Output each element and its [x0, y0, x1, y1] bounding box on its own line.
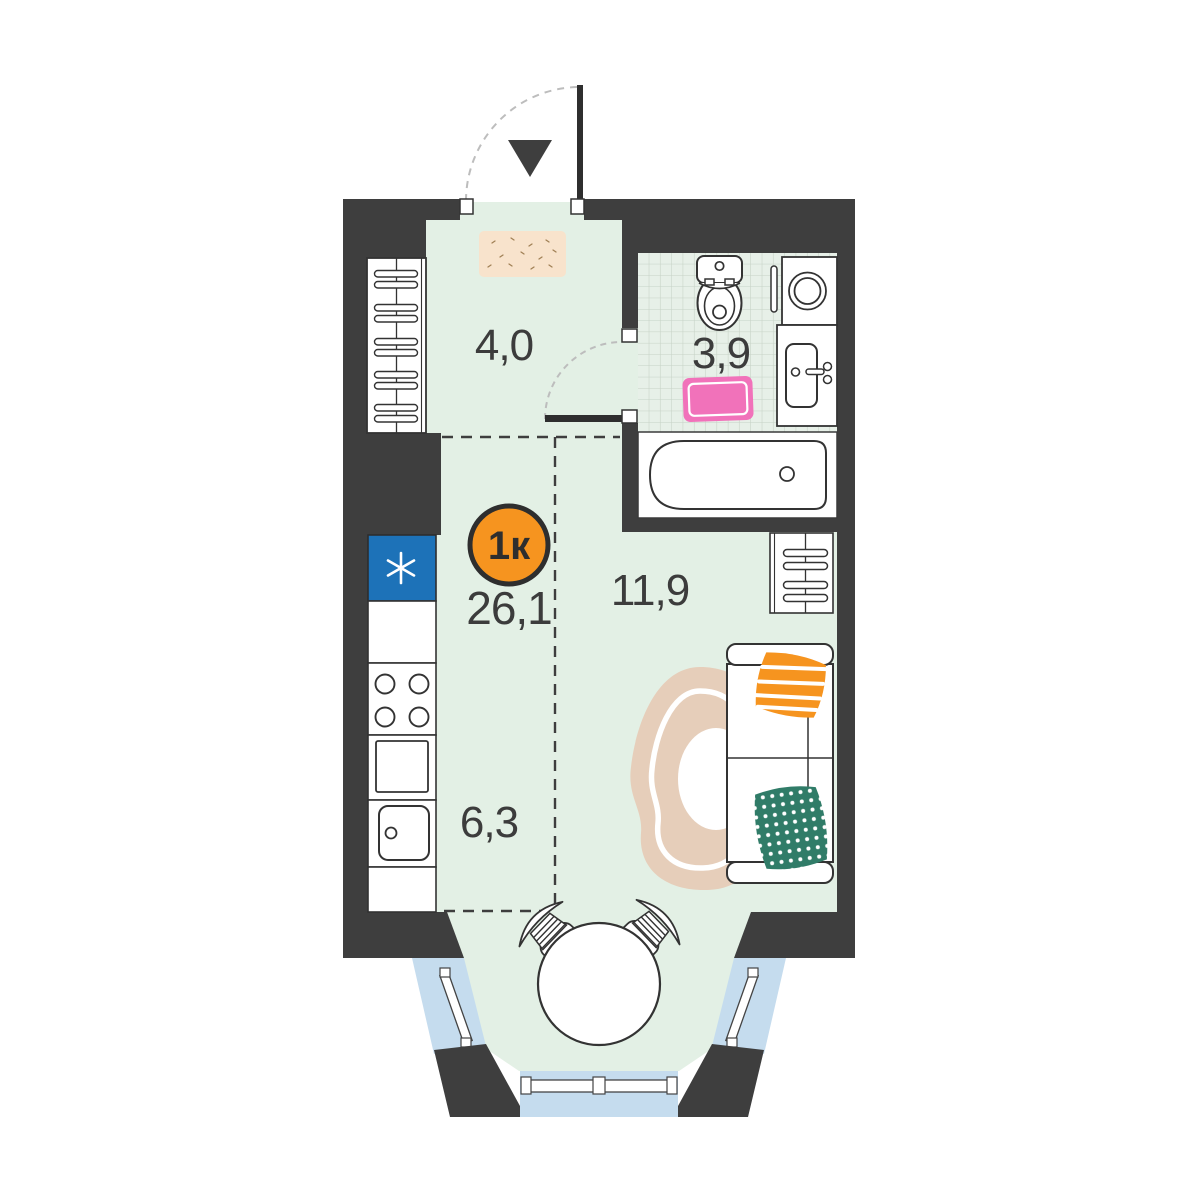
- stove: [368, 663, 436, 735]
- bathroom-area-label: 3,9: [692, 329, 750, 378]
- entrance-door: [460, 85, 584, 214]
- kitchen-area-label: 6,3: [460, 798, 518, 847]
- sofa: [727, 644, 833, 883]
- total-area-label: 26,1: [466, 582, 552, 634]
- bay-window-bottom: [520, 1071, 678, 1117]
- entrance-arrow-icon: [508, 140, 552, 177]
- bathtub: [638, 432, 837, 518]
- door-leaf: [545, 415, 622, 422]
- radiator: [770, 533, 833, 613]
- fridge: [368, 535, 436, 601]
- doormat: [479, 231, 566, 277]
- wardrobe: [367, 258, 426, 433]
- bathroom-sink: [777, 325, 837, 426]
- kitchen-sink: [368, 800, 436, 867]
- toilet: [697, 256, 742, 330]
- living-area-label: 11,9: [611, 566, 689, 615]
- hallway-area-label: 4,0: [475, 321, 533, 370]
- kitchen-counter-end: [368, 867, 436, 912]
- door-leaf: [577, 85, 583, 202]
- oven: [368, 735, 436, 800]
- bath-rug: [682, 376, 753, 422]
- room-type-label: 1к: [488, 524, 531, 568]
- dining-table: [538, 923, 660, 1045]
- floorplan-canvas: 1к 26,1 4,0 3,9 11,9 6,3: [0, 0, 1200, 1200]
- floorplan-svg: 1к 26,1 4,0 3,9 11,9 6,3: [0, 0, 1200, 1200]
- kitchen-counter: [368, 601, 436, 663]
